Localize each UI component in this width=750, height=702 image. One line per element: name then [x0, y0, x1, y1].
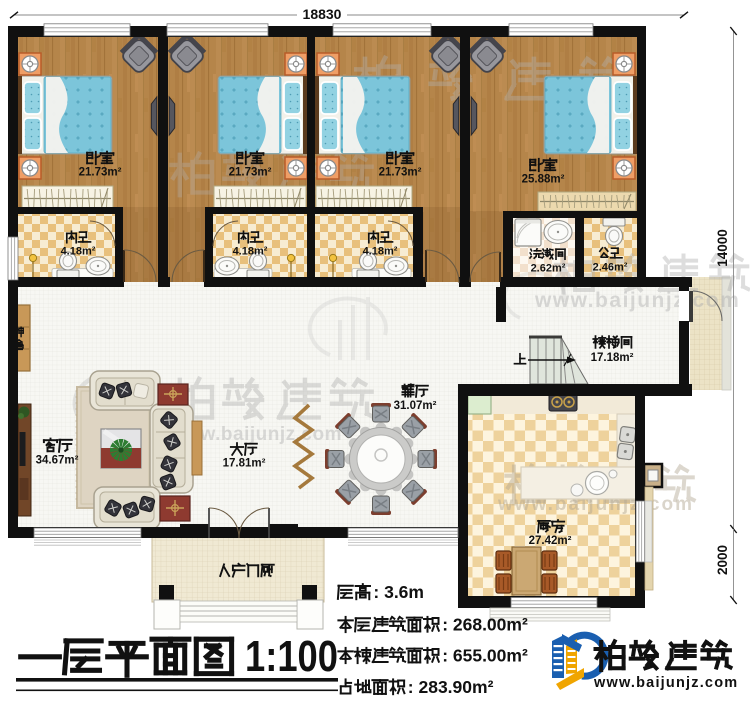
- svg-text:www.baijunjz.com: www.baijunjz.com: [593, 675, 738, 691]
- svg-text:2.62m²: 2.62m²: [531, 262, 566, 274]
- svg-text:: 3.6m: : 3.6m: [373, 582, 424, 602]
- svg-text:27.42m²: 27.42m²: [529, 535, 572, 547]
- svg-text:1:100: 1:100: [245, 632, 338, 681]
- svg-text:21.73m²: 21.73m²: [379, 167, 422, 179]
- svg-text:4.18m²: 4.18m²: [363, 245, 398, 257]
- svg-text:4.18m²: 4.18m²: [233, 245, 268, 257]
- svg-text:14000: 14000: [715, 229, 730, 267]
- svg-text:: 655.00m²: : 655.00m²: [442, 646, 528, 666]
- svg-text:17.18m²: 17.18m²: [591, 352, 634, 364]
- svg-text:2.46m²: 2.46m²: [593, 261, 628, 273]
- svg-text:4.18m²: 4.18m²: [61, 245, 96, 257]
- svg-text:21.73m²: 21.73m²: [229, 167, 272, 179]
- svg-text:31.07m²: 31.07m²: [394, 400, 437, 412]
- svg-text:18830: 18830: [303, 6, 342, 22]
- svg-text:25.88m²: 25.88m²: [522, 174, 565, 186]
- svg-text:: 283.90m²: : 283.90m²: [408, 677, 494, 697]
- svg-text:: 268.00m²: : 268.00m²: [442, 615, 528, 635]
- svg-text:17.81m²: 17.81m²: [223, 458, 266, 470]
- svg-text:21.73m²: 21.73m²: [79, 167, 122, 179]
- svg-text:2000: 2000: [715, 545, 730, 575]
- svg-text:34.67m²: 34.67m²: [36, 455, 79, 467]
